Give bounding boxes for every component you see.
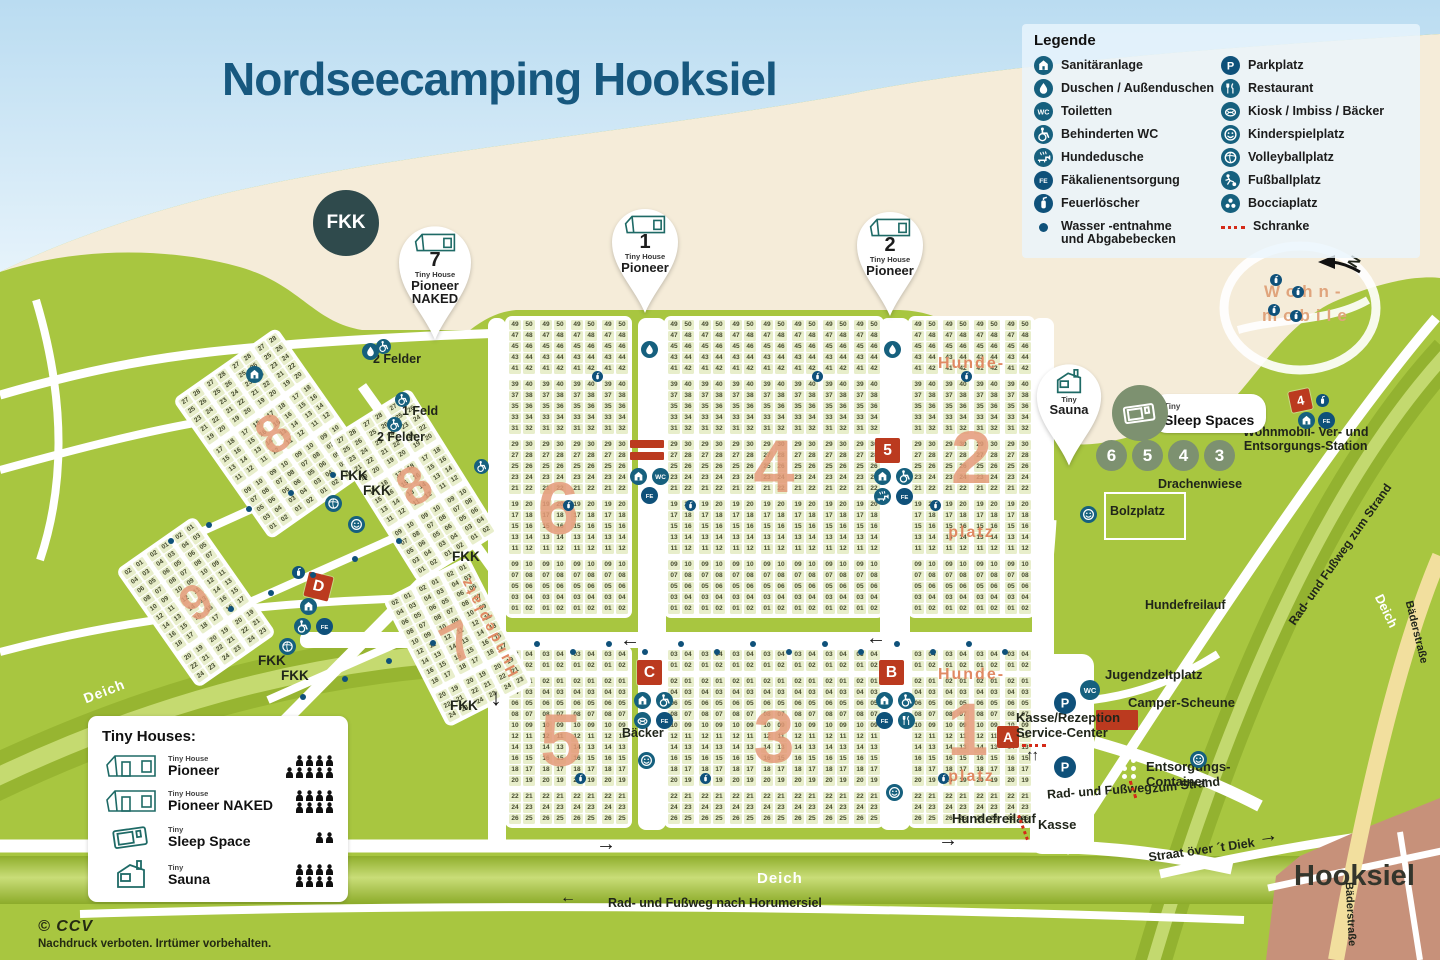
pitch-number: 21 (974, 484, 986, 494)
pitch-number: 19 (554, 776, 566, 786)
pitch-number: 46 (775, 342, 787, 352)
pitch-number: 14 (837, 533, 849, 543)
svg-text:FE: FE (661, 719, 669, 725)
person-icon (315, 802, 324, 813)
pitch-number: 16 (837, 522, 849, 532)
pitch-number: 14 (554, 533, 566, 543)
pitch-number: 03 (761, 650, 773, 660)
tiny-house-name: Sauna (168, 872, 287, 887)
wc-icon: WC (652, 468, 669, 485)
pitch-number: 02 (699, 677, 711, 687)
pitch-number: 45 (912, 342, 924, 352)
pitch-number: 08 (761, 710, 773, 720)
pitch-number: 12 (806, 544, 818, 554)
pitch-number: 46 (554, 342, 566, 352)
pitch-number: 08 (540, 710, 552, 720)
pitch-number: 49 (854, 320, 866, 330)
pitch-number: 09 (509, 560, 521, 570)
pitch-number: 08 (699, 710, 711, 720)
pitch-number: 05 (761, 582, 773, 592)
pitch-number: 06 (943, 699, 955, 709)
pitch-number: 26 (854, 814, 866, 824)
pitch-number: 37 (974, 391, 986, 401)
pitch-number: 43 (854, 353, 866, 363)
pitch-number: 03 (761, 593, 773, 603)
pitch-number: 18 (540, 765, 552, 775)
pitch-number: 50 (523, 320, 535, 330)
pitch-number: 23 (523, 803, 535, 813)
pitch-number: 16 (1005, 754, 1017, 764)
pitch-number: 11 (571, 544, 583, 554)
svg-text:FE: FE (881, 719, 889, 725)
pitch-number: 31 (912, 424, 924, 434)
pitch-number: 02 (1005, 677, 1017, 687)
pitch-number: 14 (761, 743, 773, 753)
accessible-wc-icon (474, 459, 489, 474)
pitch-number: 31 (1005, 424, 1017, 434)
pitch-number: 21 (699, 484, 711, 494)
pitch-number: 26 (792, 814, 804, 824)
pitch-number: 22 (988, 484, 1000, 494)
person-icon (325, 864, 334, 875)
pitch-number: 02 (912, 677, 924, 687)
water-point-icon (714, 649, 720, 655)
pitch-number: 24 (792, 803, 804, 813)
pitch-number: 34 (837, 413, 849, 423)
pitch-number: 15 (792, 522, 804, 532)
pitch-number: 04 (868, 650, 880, 660)
pitch-number: 10 (713, 560, 725, 570)
pitch-number: 46 (988, 342, 1000, 352)
pitch-number: 08 (837, 571, 849, 581)
pitch-number: 16 (730, 754, 742, 764)
pitch-number: 12 (682, 544, 694, 554)
pitch-number: 08 (713, 571, 725, 581)
pitch-number: 43 (1005, 353, 1017, 363)
pitch-number: 22 (682, 484, 694, 494)
pitch-number: 26 (806, 462, 818, 472)
pitch-number: 49 (792, 320, 804, 330)
pitch-number: 13 (730, 533, 742, 543)
pitch-number: 32 (957, 424, 969, 434)
pitch-number: 09 (775, 721, 787, 731)
pitch-number: 43 (602, 353, 614, 363)
pitch-number: 19 (616, 776, 628, 786)
map-label-fkk: FKK (363, 483, 391, 498)
page-title: Nordseecamping Hooksiel (222, 52, 777, 106)
pitch-number: 47 (668, 331, 680, 341)
pitch-number: 16 (602, 754, 614, 764)
pitch-number: 48 (616, 331, 628, 341)
pitch-number: 15 (744, 754, 756, 764)
water-point-icon (606, 641, 612, 647)
pitch-number: 36 (523, 402, 535, 412)
legend-item-restaurant: Restaurant (1221, 79, 1408, 100)
pitch-number: 47 (854, 331, 866, 341)
pitch-number: 12 (540, 732, 552, 742)
pitch-number: 02 (837, 604, 849, 614)
pitch-number: 06 (682, 582, 694, 592)
person-icon (325, 767, 334, 778)
pitch-number: 33 (730, 413, 742, 423)
pitch-number: 21 (713, 792, 725, 802)
pitch-number: 11 (682, 732, 694, 742)
volleyball-icon (325, 495, 342, 512)
pitch-number: 20 (744, 500, 756, 510)
pitch-number: 30 (988, 440, 1000, 450)
pitch-number: 39 (792, 380, 804, 390)
pitch-number: 22 (1019, 484, 1031, 494)
pitch-number: 41 (699, 364, 711, 374)
pitch-number: 31 (540, 424, 552, 434)
pitch-number: 38 (682, 391, 694, 401)
pitch-number: 49 (974, 320, 986, 330)
pitch-number: 07 (744, 710, 756, 720)
pitch-number: 39 (761, 380, 773, 390)
person-icon (315, 832, 324, 843)
pitch-number: 07 (974, 571, 986, 581)
pitch-number: 35 (668, 402, 680, 412)
pitch-number: 42 (554, 364, 566, 374)
pitch-number: 41 (730, 364, 742, 374)
pitch-number: 14 (523, 533, 535, 543)
pitch-number: 26 (523, 462, 535, 472)
pitch-number: 47 (602, 331, 614, 341)
pitch-number: 24 (713, 473, 725, 483)
pitch-number: 25 (912, 462, 924, 472)
pitch-number: 20 (823, 776, 835, 786)
pitch-number: 50 (988, 320, 1000, 330)
pitch-number: 49 (668, 320, 680, 330)
pitch-number: 50 (806, 320, 818, 330)
pitch-number: 50 (744, 320, 756, 330)
pitch-number: 01 (912, 661, 924, 671)
pitch-number: 22 (792, 792, 804, 802)
barrier-icon (1221, 226, 1245, 229)
pitch-number: 37 (823, 391, 835, 401)
pitch-number: 08 (806, 571, 818, 581)
pitch-number: 03 (792, 650, 804, 660)
fire-extinguisher-icon (700, 773, 711, 784)
pitch-number: 13 (761, 533, 773, 543)
building-C: C (637, 660, 662, 685)
pitch-number: 19 (823, 500, 835, 510)
pitch-number: 26 (1019, 462, 1031, 472)
pitch-number: 02 (854, 677, 866, 687)
person-icon (295, 802, 304, 813)
building-B: B (879, 660, 904, 685)
pitch-number: 42 (926, 364, 938, 374)
person-icon (315, 790, 324, 801)
pitch-number: 15 (540, 522, 552, 532)
pitch-number: 08 (730, 710, 742, 720)
direction-arrow: → (1257, 825, 1278, 847)
shower-icon (884, 341, 901, 358)
pitch-number: 21 (926, 792, 938, 802)
pitch-number: 26 (602, 814, 614, 824)
tiny-house-row-pioneer-naked: Tiny HousePioneer NAKED (102, 788, 334, 814)
kiosk-icon (634, 712, 651, 729)
pitch-number: 38 (1019, 391, 1031, 401)
svg-text:WC: WC (1038, 107, 1050, 116)
pitch-number: 21 (585, 792, 597, 802)
pitch-number: 40 (713, 380, 725, 390)
pitch-number: 22 (730, 792, 742, 802)
pitch-number: 48 (713, 331, 725, 341)
water-point-icon (386, 658, 392, 664)
pitch-number: 05 (699, 582, 711, 592)
pitch-number: 17 (761, 511, 773, 521)
pitch-number: 30 (554, 440, 566, 450)
pitch-number: 07 (730, 571, 742, 581)
legend-item-bwc: Behinderten WC (1034, 125, 1221, 146)
legend-item-feuer: Feuerlöscher (1034, 194, 1221, 215)
pitch-number: 01 (585, 677, 597, 687)
pitch-number: 17 (1005, 511, 1017, 521)
pitch-number: 15 (806, 754, 818, 764)
pitch-number: 48 (1019, 331, 1031, 341)
pitch-number: 18 (957, 511, 969, 521)
tiny-house-icon (102, 753, 160, 779)
pitch-number: 29 (540, 440, 552, 450)
pitch-number: 15 (509, 522, 521, 532)
pitch-number: 39 (1005, 380, 1017, 390)
pitch-number: 19 (1005, 500, 1017, 510)
pitch-number: 13 (699, 533, 711, 543)
pitch-number: 02 (1019, 661, 1031, 671)
direction-arrow: → (938, 830, 956, 850)
pitch-number: 01 (571, 661, 583, 671)
shower-icon (1034, 79, 1053, 98)
pitch-field-6: 4950474845464344414239403738353633343132… (505, 316, 632, 618)
pitch-number: 06 (585, 582, 597, 592)
pitch-number: 49 (1005, 320, 1017, 330)
pitch-number: 14 (1019, 533, 1031, 543)
pitch-number: 17 (926, 765, 938, 775)
pitch-number: 26 (540, 814, 552, 824)
pitch-number: 13 (1005, 533, 1017, 543)
pitch-number: 44 (616, 353, 628, 363)
pitch-number: 44 (682, 353, 694, 363)
pitch-number: 31 (854, 424, 866, 434)
pitch-number: 11 (775, 732, 787, 742)
pitch-number: 19 (585, 776, 597, 786)
pitch-number: 50 (775, 320, 787, 330)
pitch-number: 22 (616, 484, 628, 494)
pitch-number: 06 (713, 582, 725, 592)
pitch-number: 23 (585, 803, 597, 813)
pitch-number: 36 (775, 402, 787, 412)
pitch-number: 06 (988, 582, 1000, 592)
pitch-number: 22 (602, 792, 614, 802)
pitch-number: 29 (668, 440, 680, 450)
pitch-number: 08 (616, 571, 628, 581)
pitch-number: 09 (792, 560, 804, 570)
pitch-number: 12 (616, 544, 628, 554)
pitch-number: 39 (854, 380, 866, 390)
pitch-number: 48 (682, 331, 694, 341)
pitch-number: 06 (1019, 582, 1031, 592)
pitch-number: 03 (616, 688, 628, 698)
pitch-number: 40 (868, 380, 880, 390)
pitch-number: 41 (823, 364, 835, 374)
pitch-number: 45 (792, 342, 804, 352)
pitch-number: 10 (571, 721, 583, 731)
svg-text:FE: FE (321, 625, 329, 631)
pitch-number: 14 (974, 743, 986, 753)
pitch-number: 22 (668, 792, 680, 802)
pitch-number: 36 (682, 402, 694, 412)
pitch-number: 36 (713, 402, 725, 412)
pitch-number: 11 (668, 544, 680, 554)
pitch-number: 06 (699, 699, 711, 709)
map-label-baederstrasse: Bäderstraße (1402, 600, 1429, 665)
shower-icon (641, 341, 658, 358)
pitch-number: 34 (585, 413, 597, 423)
pitch-number: 21 (823, 484, 835, 494)
legend-label: Wasser -entnahme und Abgabebecken (1061, 217, 1176, 246)
pitch-number: 13 (926, 743, 938, 753)
pitch-number: 11 (823, 544, 835, 554)
pitch-number: 30 (1019, 440, 1031, 450)
pitch-number: 26 (668, 814, 680, 824)
person-icon (315, 864, 324, 875)
pitch-number: 22 (540, 792, 552, 802)
pitch-number: 33 (761, 413, 773, 423)
pitch-number: 13 (912, 533, 924, 543)
pitch-number: 04 (868, 593, 880, 603)
pitch-number: 08 (926, 571, 938, 581)
pitch-number: 08 (554, 571, 566, 581)
pitch-number: 23 (713, 803, 725, 813)
pitch-number: 24 (699, 803, 711, 813)
direction-arrow: → (596, 834, 614, 854)
pitch-number: 30 (585, 440, 597, 450)
sleep-space-number-6: 6 (1096, 440, 1127, 471)
pitch-number: 21 (761, 484, 773, 494)
pitch-number: 25 (554, 814, 566, 824)
pitch-number: 07 (602, 571, 614, 581)
waste-disposal-icon: FE (656, 712, 673, 729)
pitch-number: 44 (775, 353, 787, 363)
pitch-number: 50 (616, 320, 628, 330)
tiny-house-icon (102, 860, 160, 890)
pitch-number: 06 (523, 582, 535, 592)
pitch-number: 07 (775, 710, 787, 720)
pitch-number: 40 (775, 380, 787, 390)
person-icon (325, 755, 334, 766)
pitch-number: 28 (616, 451, 628, 461)
pitch-number: 01 (602, 661, 614, 671)
pitch-number: 48 (523, 331, 535, 341)
pitch-number: 39 (668, 380, 680, 390)
pitch-number: 14 (943, 743, 955, 753)
playground-icon (1221, 125, 1240, 144)
pitch-number: 10 (854, 721, 866, 731)
pitch-number: 21 (509, 484, 521, 494)
pitch-number: 31 (602, 424, 614, 434)
pitch-number: 19 (668, 500, 680, 510)
pitch-number: 41 (854, 364, 866, 374)
pitch-number: 40 (616, 380, 628, 390)
legend-item-wc: WCToiletten (1034, 102, 1221, 123)
pitch-number: 09 (823, 560, 835, 570)
pitch-number: 50 (1019, 320, 1031, 330)
pitch-number: 16 (854, 754, 866, 764)
pitch-number: 13 (523, 743, 535, 753)
pitch-number: 22 (957, 484, 969, 494)
pin-tiny-house-2: 2 Tiny House Pioneer (852, 208, 928, 318)
pitch-number: 36 (868, 402, 880, 412)
pitch-number: 23 (868, 803, 880, 813)
pitch-number: 13 (602, 533, 614, 543)
pitch-number: 01 (540, 661, 552, 671)
pitch-number: 05 (1019, 699, 1031, 709)
pitch-number: 40 (1019, 380, 1031, 390)
pitch-number: 48 (868, 331, 880, 341)
pitch-number: 48 (806, 331, 818, 341)
pitch-number: 47 (761, 331, 773, 341)
pitch-number: 49 (943, 320, 955, 330)
water-point-icon (310, 572, 316, 578)
pitch-number: 06 (509, 699, 521, 709)
pitch-number: 11 (602, 544, 614, 554)
pitch-number: 03 (912, 650, 924, 660)
pitch-number: 16 (554, 522, 566, 532)
pitch-number: 45 (699, 342, 711, 352)
pitch-number: 45 (823, 342, 835, 352)
pitch-number: 11 (792, 544, 804, 554)
pitch-number: 02 (554, 604, 566, 614)
pitch-number: 20 (713, 500, 725, 510)
pitch-number: 18 (837, 511, 849, 521)
wc-icon: WC (1034, 102, 1053, 121)
pitch-number: 01 (602, 604, 614, 614)
direction-arrow: ↑↑ (1026, 748, 1037, 763)
pitch-number: 16 (523, 522, 535, 532)
pitch-number: 22 (974, 792, 986, 802)
pitch-number: 12 (668, 732, 680, 742)
pitch-number: 04 (699, 688, 711, 698)
pitch-number: 06 (974, 699, 986, 709)
pitch-number: 37 (730, 391, 742, 401)
pitch-number: 24 (602, 803, 614, 813)
accessible-wc-icon (898, 692, 915, 709)
pitch-number: 13 (509, 533, 521, 543)
map-label-fkk: FKK (452, 549, 480, 564)
map-label-hundefreilauf: Hundefreilauf (1145, 598, 1226, 612)
pitch-number: 47 (1005, 331, 1017, 341)
pitch-number: 19 (868, 776, 880, 786)
pitch-number: 25 (926, 814, 938, 824)
pitch-number: 45 (602, 342, 614, 352)
pitch-number: 23 (854, 473, 866, 483)
pitch-number: 11 (523, 732, 535, 742)
accessible-wc-icon (656, 692, 673, 709)
legend-label: Fäkalienentsorgung (1061, 171, 1180, 187)
pitch-number: 06 (761, 699, 773, 709)
map-label-camper: Camper-Scheune (1128, 696, 1235, 711)
pitch-number: 39 (540, 380, 552, 390)
water-point-icon (228, 606, 234, 612)
pitch-number: 18 (668, 765, 680, 775)
pitch-number: 12 (854, 732, 866, 742)
pitch-number: 04 (602, 688, 614, 698)
pitch-number: 25 (616, 814, 628, 824)
pitch-number: 23 (912, 473, 924, 483)
pitch-number: 26 (775, 462, 787, 472)
pitch-number: 12 (571, 732, 583, 742)
